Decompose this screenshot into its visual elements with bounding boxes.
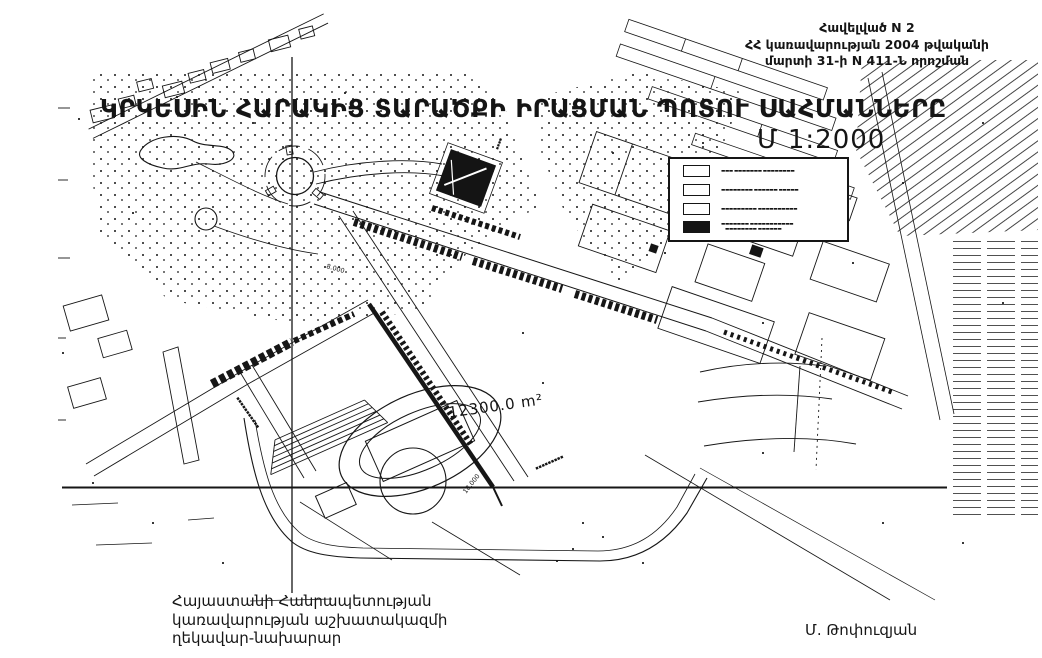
street-name-label: ▪▪▪▪▪▪▪▪▪	[534, 454, 564, 472]
page-title: ԿՐԿԵՍԻՆ ՀԱՐԱԿԻՑ ՏԱՐԱԾՔԻ ԻՐԱՑՄԱՆ ՊՈՏՈՒ ՍԱ…	[100, 94, 916, 123]
legend-item: ▬▬▬▬▬▬▬▬ ▬▬▬▬▬▬ ▬▬▬▬▬	[683, 184, 798, 196]
street-name-label: ▪▪▪▪▪▪▪▪▪▪▪	[234, 396, 260, 430]
legend-item: ▬▬▬▬▬▬▬▬▬ ▬▬▬▬▬▬▬▬▬▬	[683, 203, 797, 215]
bottom-right-roads	[645, 455, 935, 600]
legend-label: ▬▬▬▬▬▬▬▬▬ ▬▬▬▬▬▬▬▬▬▬	[721, 207, 797, 212]
buildings-left	[63, 295, 199, 464]
signature-name: Մ. Թոփուզյան	[805, 621, 917, 639]
legend-item: ▬▬▬▬▬▬▬ ▬▬▬▬▬▬▬▬▬▬▬ ▬▬▬▬▬▬▬▬ ▬▬▬▬▬▬	[683, 221, 793, 233]
legend-item: ▬▬▬ ▬▬▬▬▬▬▬ ▬▬▬▬▬▬▬▬	[683, 165, 794, 177]
issuer-block: Հայաստանի Հանրապետության կառավարության ա…	[172, 592, 447, 648]
legend-swatch-white	[683, 184, 710, 196]
appendix-line-3: մարտի 31-ի N 411-Ն որոշման	[702, 53, 1032, 70]
contours-lower-right	[698, 338, 856, 470]
distance-annotation: 18.000	[461, 472, 481, 495]
legend-box: ▬▬▬ ▬▬▬▬▬▬▬ ▬▬▬▬▬▬▬▬ ▬▬▬▬▬▬▬▬ ▬▬▬▬▬▬ ▬▬▬…	[668, 157, 849, 242]
legend-label: ▬▬▬ ▬▬▬▬▬▬▬ ▬▬▬▬▬▬▬▬	[721, 169, 794, 174]
issuer-line-3: ղեկավար-նախարար	[172, 629, 447, 648]
bottom-left-linework	[72, 502, 520, 601]
legend-label: ▬▬▬▬▬▬▬▬ ▬▬▬▬▬▬	[725, 227, 793, 232]
issuer-line-1: Հայաստանի Հանրապետության	[172, 592, 447, 611]
appendix-note: Հավելված N 2 ՀՀ կառավարության 2004 թվակա…	[702, 20, 1032, 70]
legend-label: ▬▬▬▬▬▬▬▬ ▬▬▬▬▬▬ ▬▬▬▬▬	[721, 188, 798, 193]
left-edge-ticks	[58, 108, 70, 420]
scanned-map-page: ▪▪▪▪▪▪▪▪▪▪▪ ▪▪▪▪▪▪▪▪▪ ▪▪▪▪ 18.000 8.000 …	[0, 0, 1042, 658]
legend-swatch-black	[683, 221, 710, 233]
stadium	[259, 351, 518, 545]
legend-label-group: ▬▬▬▬▬▬▬ ▬▬▬▬▬▬▬▬▬▬▬ ▬▬▬▬▬▬▬▬ ▬▬▬▬▬▬	[721, 222, 793, 232]
appendix-line-2: ՀՀ կառավարության 2004 թվականի	[702, 37, 1032, 54]
appendix-line-1: Հավելված N 2	[702, 20, 1032, 37]
legend-swatch-white	[683, 165, 710, 177]
circular-building	[380, 448, 446, 514]
left-street	[86, 300, 376, 478]
issuer-line-2: կառավարության աշխատակազմի	[172, 611, 447, 630]
map-scale: Մ 1:2000	[757, 125, 885, 155]
legend-swatch-white	[683, 203, 710, 215]
